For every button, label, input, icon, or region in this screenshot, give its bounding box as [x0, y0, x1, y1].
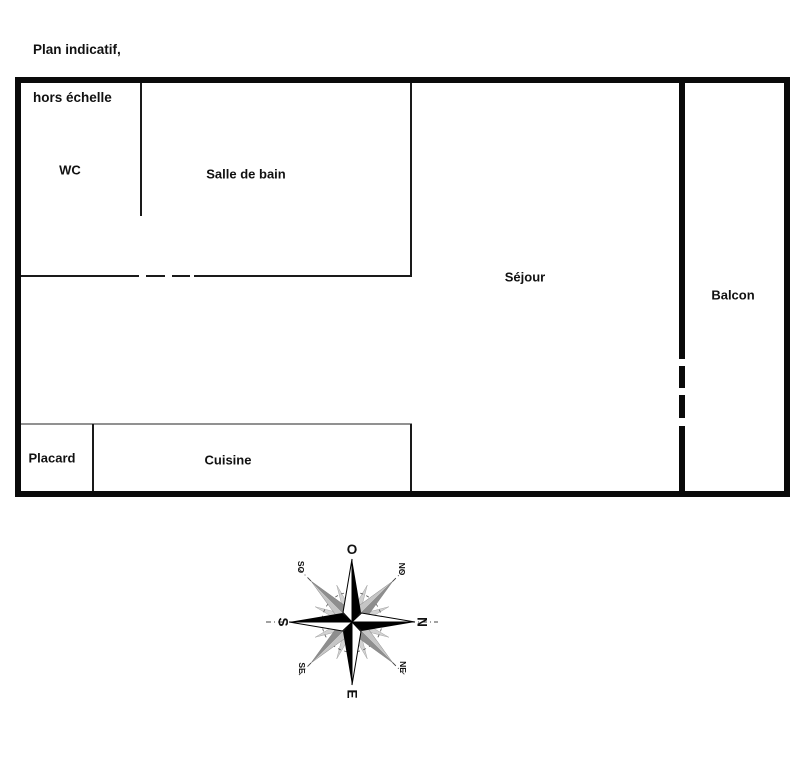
balcony-wall-lower: [679, 426, 685, 491]
wall-right: [784, 77, 790, 497]
room-label-salle-de-bain: Salle de bain: [206, 167, 285, 182]
bathroom-door-dash-2: [172, 275, 190, 277]
compass-label-northwest: NO: [397, 563, 407, 576]
room-label-cuisine: Cuisine: [205, 453, 252, 468]
bathroom-bottom-wall-right: [194, 275, 412, 277]
room-label-placard: Placard: [29, 451, 76, 466]
balcony-door-dash-1: [679, 366, 685, 388]
wall-top: [15, 77, 790, 83]
compass-label-northeast: NE: [398, 661, 408, 673]
balcony-wall-upper: [679, 83, 685, 359]
plan-note-line1: Plan indicatif,: [33, 42, 121, 58]
room-label-sejour: Séjour: [505, 270, 545, 285]
bathroom-door-dash-1: [146, 275, 165, 277]
compass-label-south: S: [276, 617, 291, 626]
kitchen-right-wall: [410, 424, 412, 491]
plan-note: Plan indicatif, hors échelle: [33, 10, 121, 138]
compass-label-east: E: [345, 689, 360, 698]
kitchen-top-wall: [21, 423, 412, 425]
wall-bottom: [15, 491, 790, 497]
wall-left: [15, 77, 21, 497]
balcony-door-dash-2: [679, 395, 685, 418]
plan-note-line2: hors échelle: [33, 90, 121, 106]
placard-divider-wall: [92, 424, 94, 491]
wc-divider-wall: [140, 83, 142, 216]
compass-rose: O N S E NO SO NE SE: [252, 522, 452, 722]
bathroom-bottom-wall-left: [21, 275, 139, 277]
floor-plan-page: Plan indicatif, hors échelle WC Salle de…: [0, 0, 800, 760]
room-label-balcon: Balcon: [711, 288, 754, 303]
compass-label-west: O: [347, 542, 358, 557]
compass-label-southwest: SO: [296, 561, 306, 574]
room-label-wc: WC: [59, 163, 81, 178]
compass-label-north: N: [415, 617, 430, 627]
compass-label-southeast: SE: [297, 662, 307, 674]
bathroom-right-wall: [410, 83, 412, 277]
